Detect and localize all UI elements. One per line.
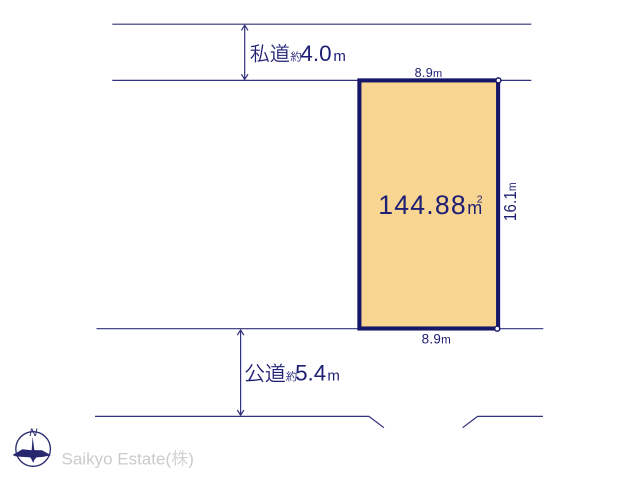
svg-text:m: m xyxy=(327,368,340,385)
svg-text:8.9m: 8.9m xyxy=(415,66,443,80)
svg-text:2: 2 xyxy=(477,194,483,206)
svg-text:m: m xyxy=(333,48,346,65)
svg-text:N: N xyxy=(29,427,38,439)
svg-text:Saikyo Estate(: Saikyo Estate( xyxy=(62,450,172,469)
svg-text:4.0: 4.0 xyxy=(300,41,331,66)
svg-text:144.88: 144.88 xyxy=(378,190,467,220)
svg-text:): ) xyxy=(188,450,194,469)
svg-text:5.4: 5.4 xyxy=(295,361,326,386)
svg-text:8.9m: 8.9m xyxy=(422,332,451,347)
